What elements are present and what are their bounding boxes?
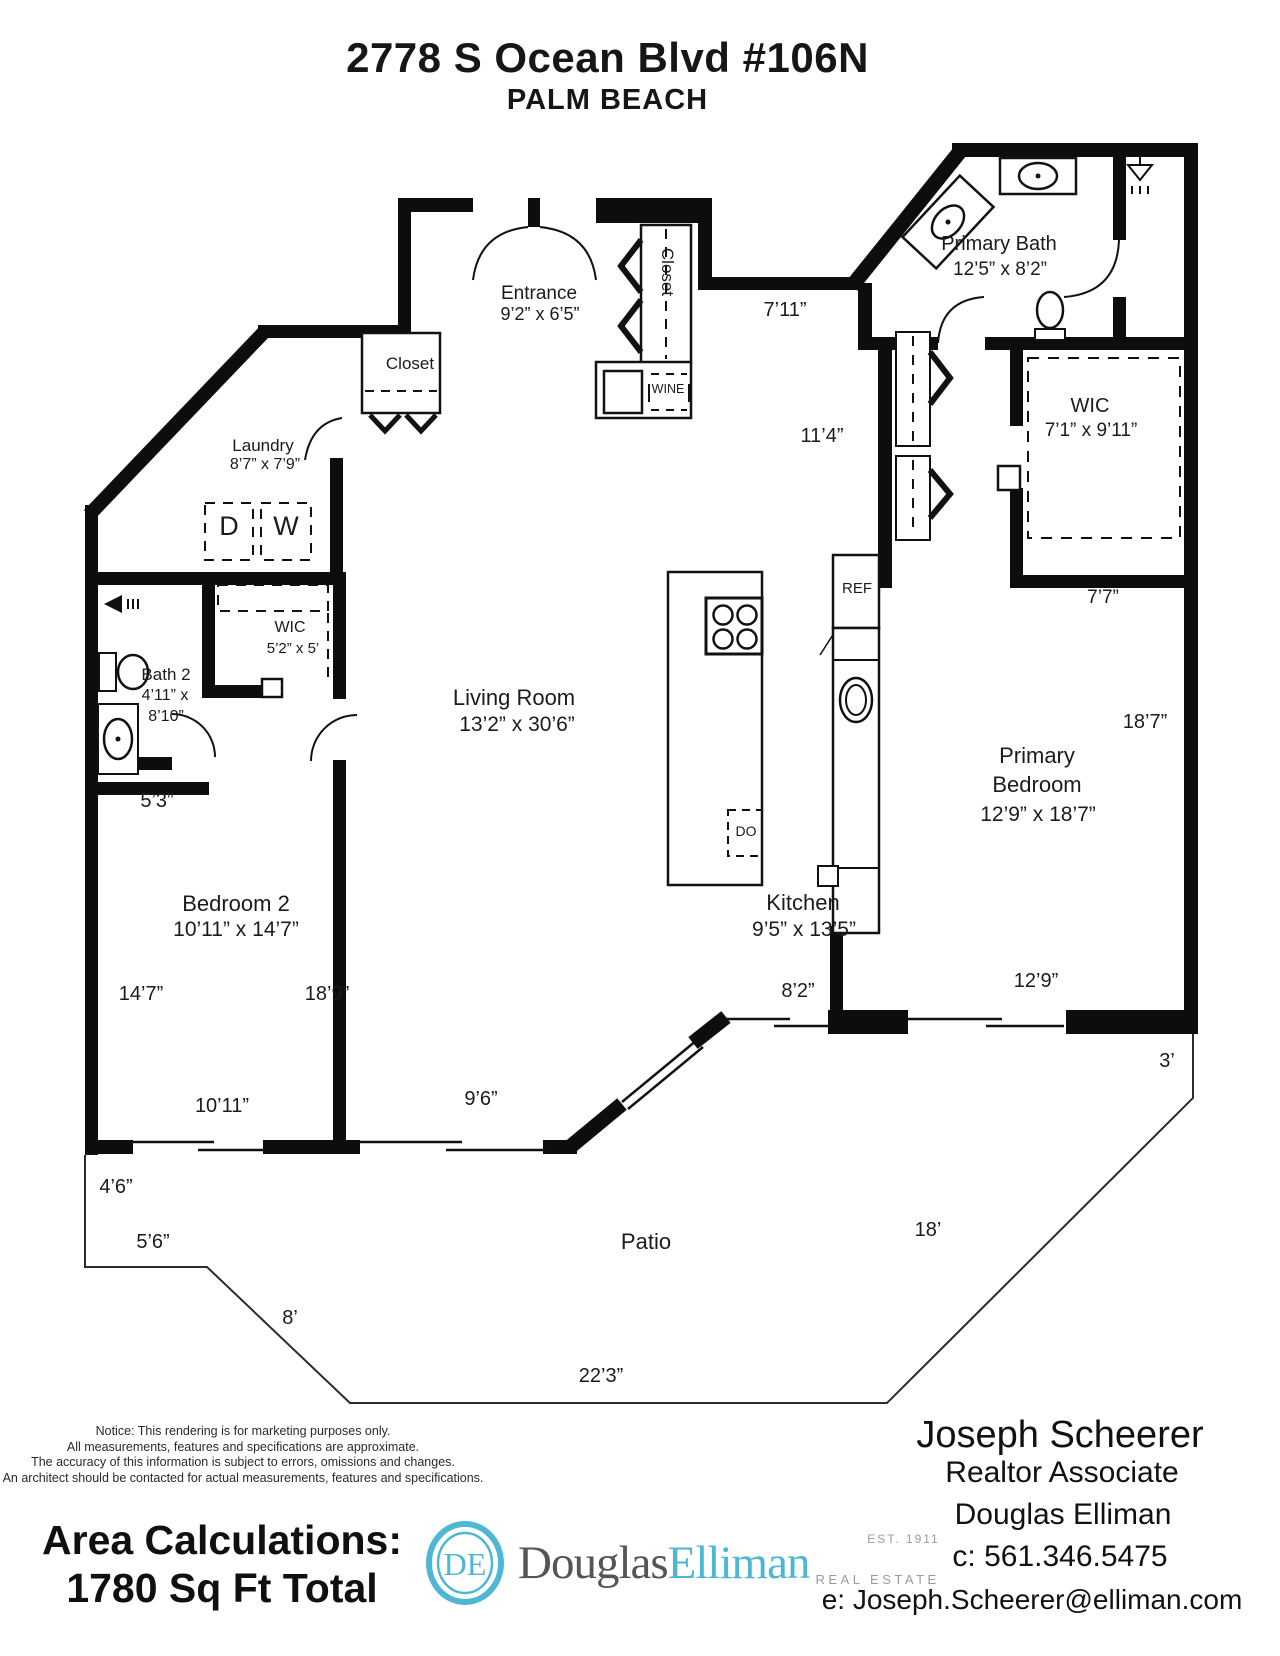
room-dims-wic1: 7’1” x 9’11” [1045, 421, 1138, 441]
hall-closet-icon [621, 225, 691, 363]
foyer-closet-icon [362, 333, 440, 431]
dim-label-5-6: 5’6” [136, 1232, 169, 1253]
dim-label-11-4: 11’4” [801, 426, 844, 447]
room-label-primary-bath: Primary Bath [941, 234, 1057, 255]
room-label-hall-closet: Closet [658, 248, 676, 296]
wine-label: WINE [652, 383, 685, 396]
dim-label-7-11: 7’11” [764, 300, 807, 321]
agent-company: Douglas Elliman [955, 1498, 1172, 1532]
utility-box [818, 866, 838, 886]
dim-label-5-3: 5’3” [140, 791, 173, 812]
room-dims-kitchen: 9’5” x 13’5” [752, 919, 856, 941]
bath2-fixtures [98, 595, 215, 774]
bedroom2-door-arc [311, 715, 357, 761]
room-label-bedroom2: Bedroom 2 [182, 892, 290, 915]
washer-label: W [273, 512, 298, 540]
brand-est: EST. 1911 [867, 1532, 939, 1546]
dim-label-9-6: 9’6” [464, 1089, 497, 1110]
dim-label-7-7: 7’7” [1087, 588, 1119, 608]
dim-label-8-2: 8’2” [781, 981, 814, 1002]
dim-label-4-6: 4’6” [99, 1177, 132, 1198]
room-dims-bath2-1: 4’11” x [142, 688, 189, 705]
brand-name-elliman: Elliman [668, 1537, 810, 1589]
primary-bath-door-arc [938, 297, 984, 343]
room-label-patio: Patio [621, 1230, 671, 1253]
room-label-entrance: Entrance [501, 284, 577, 304]
dryer-label: D [219, 512, 239, 540]
floor-plan-graphic [0, 0, 1280, 1656]
room-label-foyer-closet: Closet [386, 355, 434, 373]
notice-line: All measurements, features and specifica… [3, 1440, 484, 1456]
brand-monogram-icon: DE [424, 1520, 506, 1606]
room-label-wic2: WIC [274, 620, 305, 637]
svg-text:DE: DE [444, 1546, 487, 1582]
agent-name: Joseph Scheerer [916, 1414, 1203, 1457]
agent-phone: c: 561.346.5475 [952, 1540, 1167, 1574]
dim-label-14-7: 14’7” [119, 984, 163, 1005]
agent-email: e: Joseph.Scheerer@elliman.com [822, 1584, 1243, 1616]
agent-title: Realtor Associate [945, 1456, 1178, 1490]
room-dims-bedroom2: 10’11” x 14’7” [173, 919, 299, 941]
hall-closet-bays [896, 332, 950, 540]
divider-door-arc [1064, 240, 1119, 297]
notice-line: Notice: This rendering is for marketing … [3, 1424, 484, 1440]
room-label-wic1: WIC [1071, 396, 1110, 417]
refrigerator-label: REF [842, 581, 872, 597]
area-title: Area Calculations: [42, 1516, 402, 1564]
room-label-bath2: Bath 2 [141, 666, 190, 684]
door-stop [998, 466, 1020, 490]
shower-head-icon [104, 595, 122, 613]
dim-label-18-9: 18’9” [305, 984, 349, 1005]
area-value: 1780 Sq Ft Total [42, 1564, 402, 1612]
dishwasher-label: DO [736, 824, 757, 839]
room-label-living: Living Room [453, 686, 575, 709]
door-stop [262, 679, 282, 697]
toilet-icon [1037, 292, 1063, 328]
dim-label-3: 3’ [1159, 1051, 1175, 1072]
room-label-primary-bedroom-2: Bedroom [992, 773, 1081, 796]
room-dims-entrance: 9’2” x 6’5” [500, 305, 579, 324]
room-dims-laundry: 8’7” x 7’9” [230, 457, 300, 474]
laundry-door-arc [305, 418, 342, 460]
dim-label-22-3: 22’3” [579, 1366, 623, 1387]
dim-label-10-11: 10’11” [195, 1096, 249, 1117]
floorplan-page: 2778 S Ocean Blvd #106N PALM BEACH [0, 0, 1280, 1656]
room-dims-primary-bedroom: 12’9” x 18’7” [980, 804, 1096, 826]
notice-line: The accuracy of this information is subj… [3, 1455, 484, 1471]
room-dims-living: 13’2” x 30’6” [459, 714, 575, 736]
room-label-kitchen: Kitchen [766, 891, 839, 914]
area-calculations: Area Calculations: 1780 Sq Ft Total [42, 1516, 402, 1612]
entry-door-icon [473, 227, 596, 280]
room-label-primary-bedroom-1: Primary [999, 744, 1075, 767]
dim-label-12-9: 12’9” [1014, 971, 1058, 992]
room-label-laundry: Laundry [232, 437, 293, 455]
notice-line: An architect should be contacted for act… [3, 1471, 484, 1487]
room-dims-wic2: 5’2” x 5’ [267, 641, 320, 657]
dim-label-18-7: 18’7” [1123, 712, 1167, 733]
kitchen-counter-icons [818, 555, 879, 933]
dim-label-8: 8’ [282, 1308, 298, 1329]
room-dims-primary-bath: 12’5” x 8’2” [953, 260, 1047, 280]
disclaimer-notice: Notice: This rendering is for marketing … [3, 1424, 484, 1486]
brand-name-douglas: Douglas [518, 1537, 668, 1589]
toilet-icon [99, 653, 116, 691]
room-dims-bath2-2: 8’10” [148, 709, 184, 726]
dim-label-18: 18’ [915, 1220, 942, 1241]
wic1-fixtures [998, 358, 1180, 538]
shower-head-icon [1128, 165, 1152, 180]
